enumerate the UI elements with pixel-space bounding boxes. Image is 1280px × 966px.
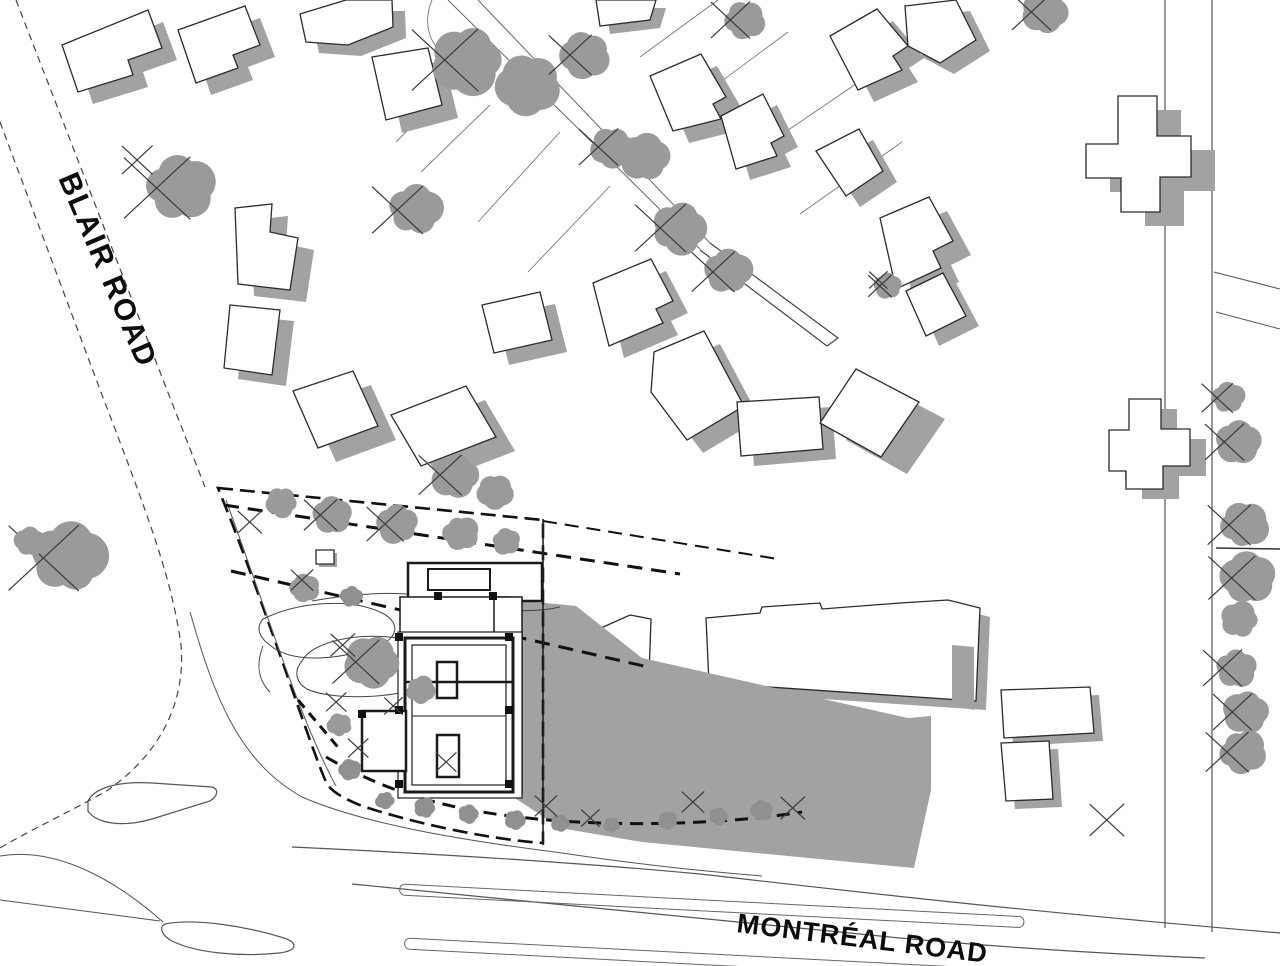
tree-canopy bbox=[275, 500, 291, 516]
tree-canopy bbox=[175, 161, 216, 202]
tree bbox=[692, 249, 754, 293]
tree-canopy bbox=[1230, 663, 1254, 687]
tree-canopy bbox=[456, 56, 491, 91]
column-marker bbox=[505, 706, 513, 714]
tree-canopy bbox=[665, 221, 699, 255]
tree bbox=[620, 133, 670, 179]
tree bbox=[1202, 382, 1246, 413]
building-footprint bbox=[316, 550, 334, 564]
tree-canopy bbox=[664, 812, 676, 824]
tree-canopy bbox=[411, 192, 443, 224]
tree-canopy bbox=[340, 589, 353, 602]
road-line bbox=[528, 186, 610, 272]
tree-canopy bbox=[752, 806, 762, 816]
road-line bbox=[478, 132, 560, 222]
tree bbox=[711, 2, 765, 40]
tree bbox=[124, 155, 216, 219]
column-marker bbox=[489, 592, 497, 600]
tree-canopy bbox=[506, 812, 518, 824]
tree bbox=[495, 56, 560, 117]
tree-canopy bbox=[359, 657, 388, 686]
tree bbox=[1213, 691, 1269, 733]
column-marker bbox=[395, 780, 403, 788]
tree-canopy bbox=[1222, 562, 1250, 590]
setback-dashed-line bbox=[543, 521, 778, 559]
road-line bbox=[162, 922, 294, 955]
tree bbox=[1208, 551, 1275, 602]
tree-canopy bbox=[63, 533, 110, 580]
tree-canopy bbox=[624, 150, 650, 176]
tree-canopy bbox=[724, 254, 754, 284]
tree-canopy bbox=[463, 811, 476, 824]
building-footprint bbox=[1001, 687, 1094, 738]
tree-canopy bbox=[582, 47, 607, 72]
tree-canopy bbox=[327, 719, 341, 733]
tree bbox=[493, 528, 520, 555]
column-marker bbox=[505, 780, 513, 788]
building-footprint bbox=[737, 397, 823, 456]
tree-canopy bbox=[1231, 601, 1255, 625]
proposed-building-outline bbox=[362, 711, 406, 771]
tree-canopy bbox=[713, 814, 725, 826]
building-edge-shadow bbox=[952, 645, 974, 710]
tree bbox=[367, 504, 418, 544]
building-footprint bbox=[224, 305, 280, 375]
building-footprint bbox=[62, 10, 162, 92]
tree-canopy bbox=[519, 58, 556, 95]
landscape-curve bbox=[259, 646, 270, 692]
tree-canopy bbox=[458, 520, 475, 537]
tree bbox=[338, 759, 361, 780]
site-plan-svg: BLAIR ROAD MONTRÉAL ROAD bbox=[0, 0, 1280, 966]
site-plan-page: BLAIR ROAD MONTRÉAL ROAD bbox=[0, 0, 1280, 966]
tree bbox=[442, 518, 478, 550]
tree bbox=[635, 203, 707, 256]
column-marker bbox=[434, 592, 442, 600]
proposed-building-outline bbox=[437, 662, 457, 698]
tree bbox=[1012, 0, 1069, 33]
tree bbox=[459, 804, 479, 823]
tree bbox=[266, 488, 297, 518]
road-line bbox=[1216, 312, 1280, 329]
lane-marking bbox=[399, 884, 1024, 928]
tree-canopy bbox=[16, 533, 30, 547]
tree-canopy bbox=[1238, 734, 1261, 757]
building-footprint bbox=[235, 204, 298, 290]
tree bbox=[14, 527, 46, 556]
tree-canopy bbox=[604, 822, 613, 831]
tree-canopy bbox=[559, 818, 569, 828]
road-line bbox=[1214, 272, 1280, 289]
curb-line bbox=[226, 500, 336, 786]
tree-canopy bbox=[347, 761, 361, 775]
building-footprint bbox=[650, 54, 726, 131]
tree bbox=[1203, 649, 1257, 686]
tree bbox=[304, 496, 352, 533]
tree bbox=[1205, 420, 1262, 463]
road-line bbox=[1216, 548, 1280, 549]
tree-canopy bbox=[420, 797, 434, 811]
tree bbox=[1208, 503, 1269, 546]
tree-canopy bbox=[1239, 514, 1269, 544]
proposed-building-outline bbox=[428, 569, 490, 590]
tree-canopy bbox=[375, 796, 387, 808]
road-line bbox=[0, 900, 160, 921]
tree bbox=[415, 797, 436, 817]
tree bbox=[372, 184, 444, 234]
tree-canopy bbox=[494, 537, 512, 555]
tree-canopy bbox=[321, 497, 342, 518]
column-marker bbox=[358, 710, 366, 718]
tree bbox=[327, 713, 352, 736]
tree-canopy bbox=[302, 583, 319, 600]
column-marker bbox=[505, 633, 513, 641]
tree bbox=[476, 476, 513, 510]
blair-road-label: BLAIR ROAD bbox=[52, 168, 164, 373]
tree bbox=[549, 32, 610, 79]
tree bbox=[1206, 731, 1266, 775]
column-marker bbox=[395, 633, 403, 641]
building-footprint bbox=[1001, 741, 1053, 801]
tree bbox=[375, 792, 395, 809]
column-marker bbox=[395, 706, 403, 714]
tree bbox=[1221, 601, 1257, 637]
tree-canopy bbox=[416, 677, 431, 692]
road-line bbox=[0, 854, 163, 922]
road-line bbox=[88, 783, 217, 824]
tree bbox=[505, 810, 526, 830]
tree-canopy bbox=[490, 477, 510, 497]
